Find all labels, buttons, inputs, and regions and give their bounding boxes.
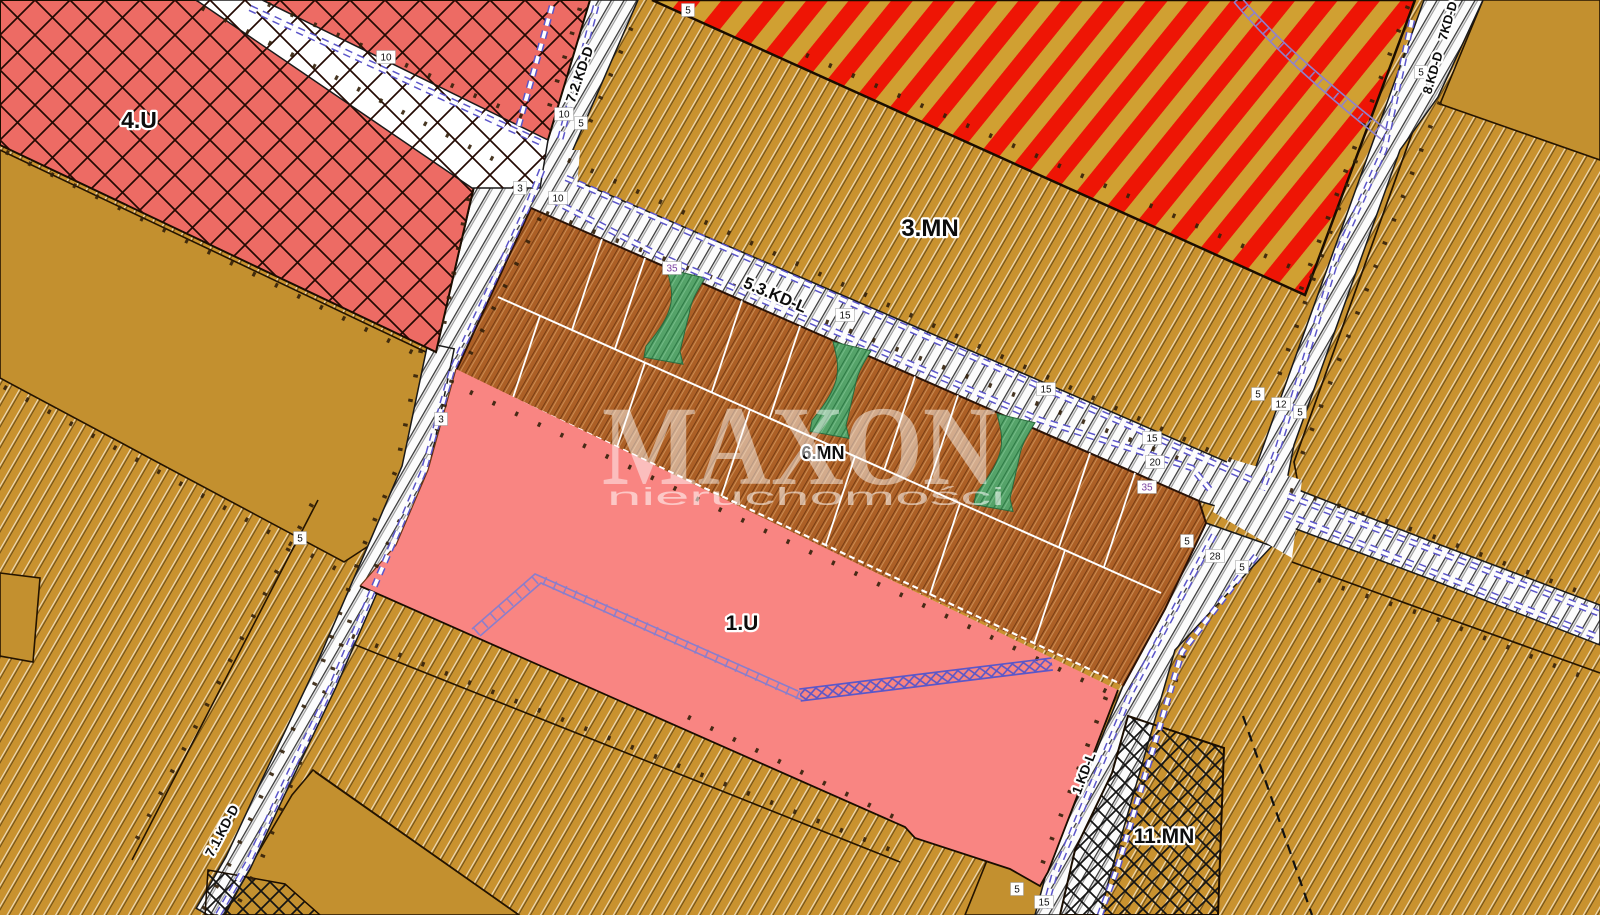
svg-text:10: 10	[380, 53, 392, 64]
svg-text:3: 3	[517, 184, 523, 195]
svg-text:28: 28	[1209, 552, 1221, 563]
svg-text:1.U: 1.U	[726, 612, 759, 635]
svg-text:5: 5	[1239, 563, 1245, 574]
svg-text:5: 5	[297, 534, 303, 545]
svg-text:5: 5	[1255, 390, 1261, 401]
svg-text:5: 5	[1014, 885, 1020, 896]
svg-text:11.MN: 11.MN	[1134, 825, 1195, 848]
svg-text:15: 15	[839, 311, 851, 322]
svg-text:15: 15	[1040, 385, 1052, 396]
svg-text:3.MN: 3.MN	[901, 215, 958, 242]
svg-text:5: 5	[1184, 537, 1190, 548]
svg-text:5: 5	[1297, 408, 1303, 419]
svg-text:35: 35	[1141, 483, 1153, 494]
svg-text:35: 35	[666, 264, 678, 275]
svg-text:10: 10	[552, 194, 564, 205]
svg-text:20: 20	[1149, 458, 1161, 469]
svg-text:4.U: 4.U	[121, 107, 157, 133]
svg-text:5: 5	[578, 119, 584, 130]
svg-text:5: 5	[685, 6, 691, 17]
svg-text:15: 15	[1038, 898, 1050, 909]
svg-text:3: 3	[438, 415, 444, 426]
svg-text:12: 12	[1275, 400, 1287, 411]
svg-text:15: 15	[1146, 434, 1158, 445]
svg-text:10: 10	[558, 110, 570, 121]
svg-text:nieruchomości: nieruchomości	[607, 483, 1005, 511]
